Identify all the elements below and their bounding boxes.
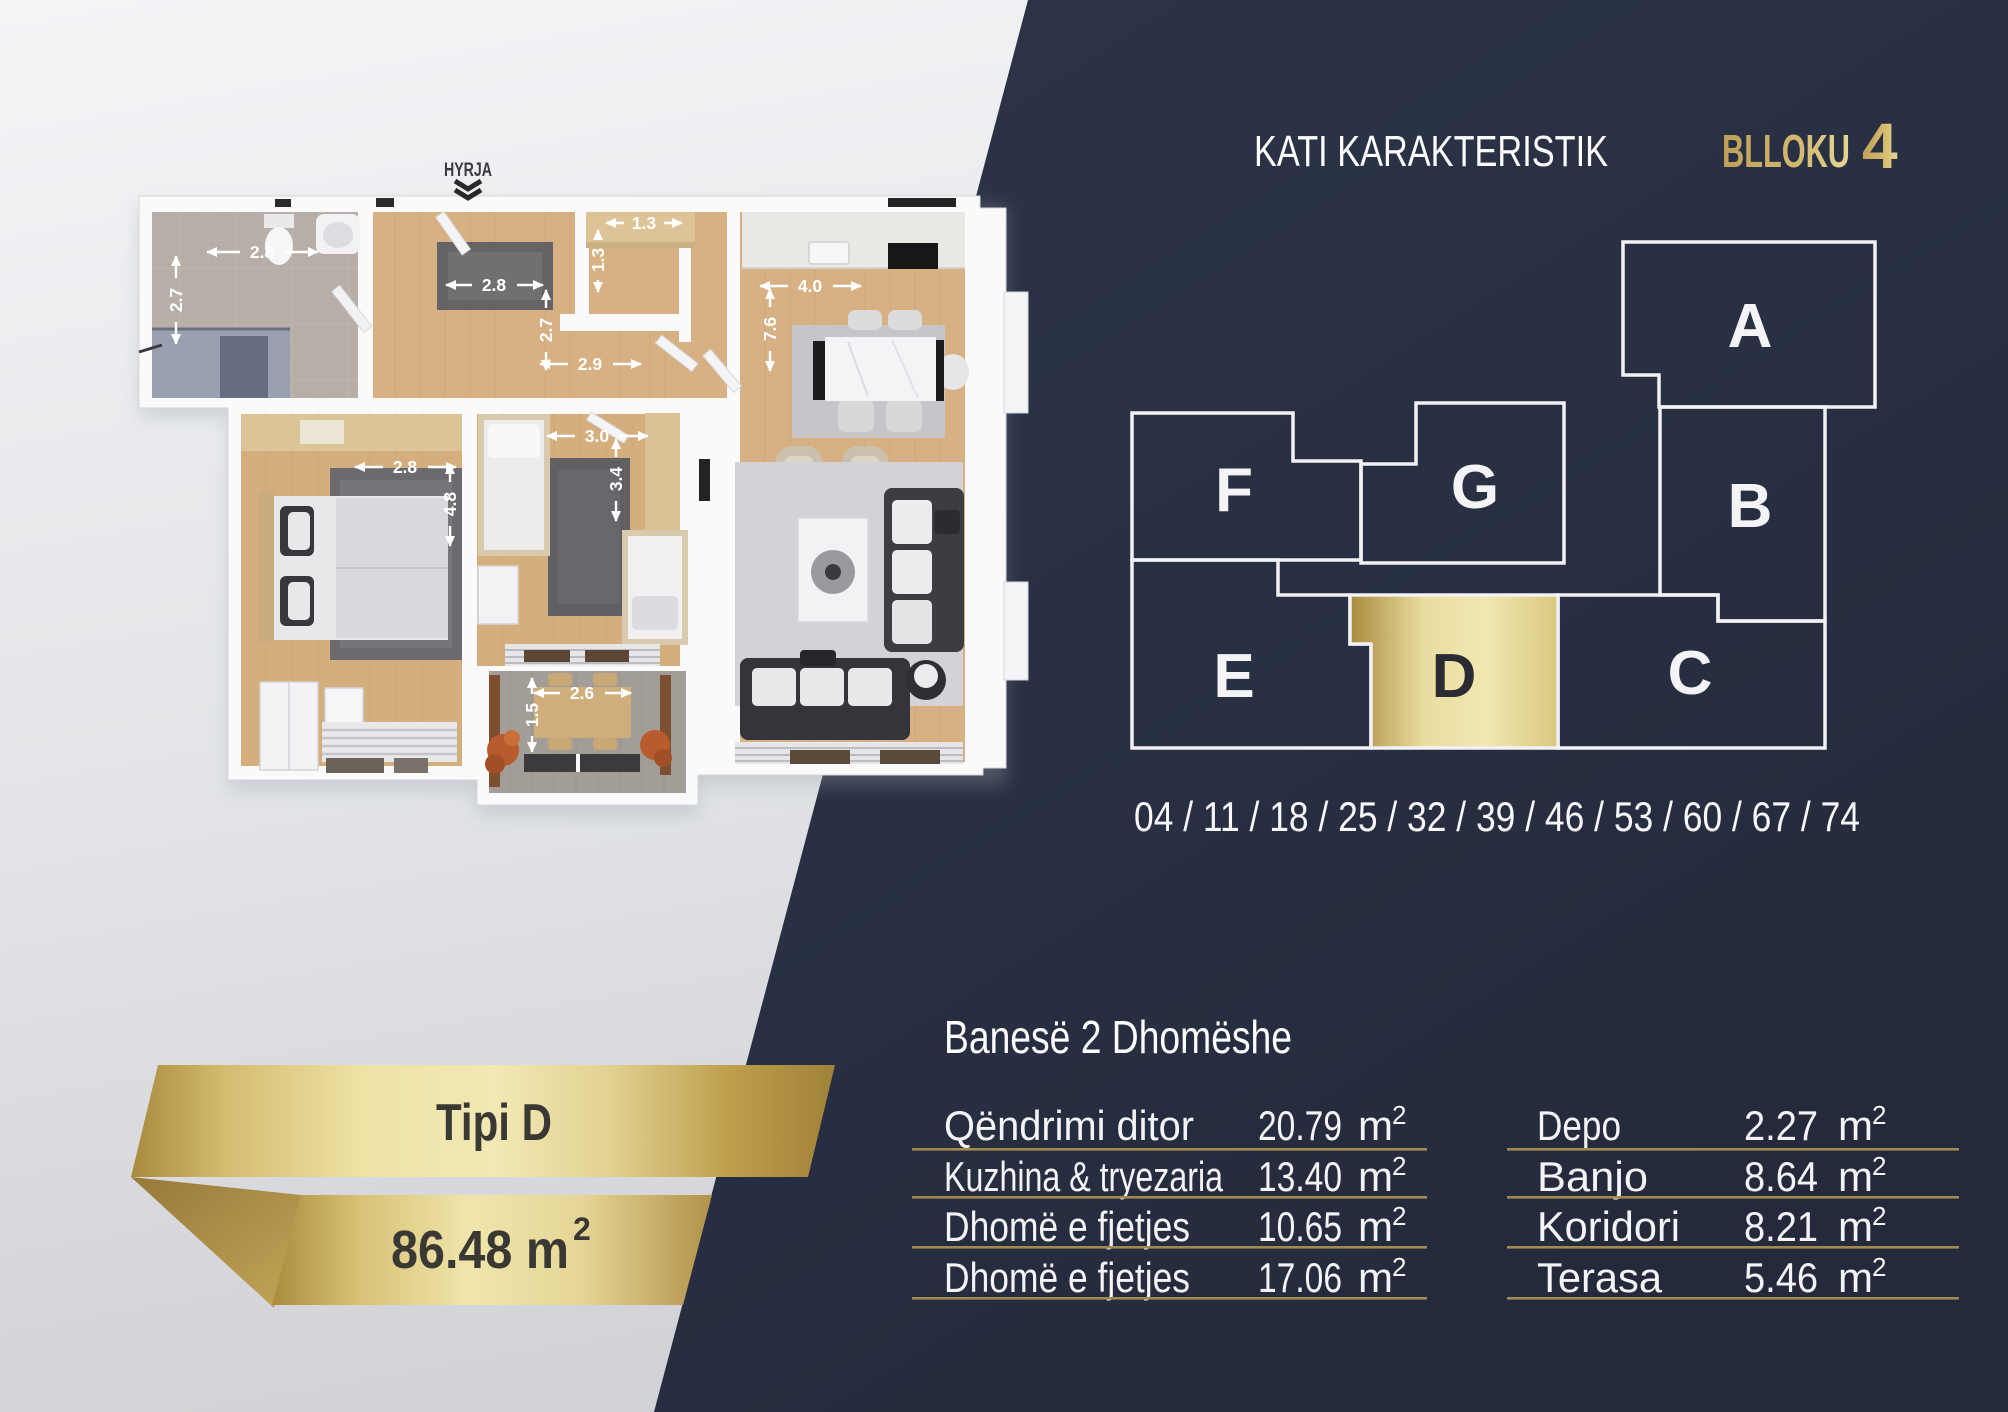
svg-text:m: m — [1358, 1254, 1393, 1301]
svg-text:Koridori: Koridori — [1537, 1203, 1680, 1250]
svg-text:A: A — [1728, 292, 1773, 361]
svg-text:m: m — [1838, 1203, 1873, 1250]
svg-text:m: m — [1358, 1102, 1393, 1149]
svg-text:m: m — [1838, 1102, 1873, 1149]
svg-text:8.21: 8.21 — [1744, 1203, 1818, 1250]
svg-text:2: 2 — [1872, 1100, 1886, 1130]
svg-text:BLLOKU: BLLOKU — [1722, 125, 1850, 177]
svg-text:2: 2 — [1392, 1100, 1406, 1130]
svg-text:2.8: 2.8 — [482, 275, 507, 295]
svg-text:4.8: 4.8 — [440, 492, 460, 517]
svg-text:8.64: 8.64 — [1744, 1153, 1818, 1200]
svg-text:13.40: 13.40 — [1258, 1153, 1342, 1200]
svg-text:HYRJA: HYRJA — [444, 160, 492, 181]
svg-text:2: 2 — [1392, 1201, 1406, 1231]
svg-text:2.6: 2.6 — [570, 683, 595, 703]
svg-text:Tipi D: Tipi D — [436, 1094, 552, 1152]
svg-text:Dhomë e fjetjes: Dhomë e fjetjes — [944, 1203, 1190, 1250]
svg-text:2.9: 2.9 — [578, 354, 603, 374]
svg-text:3.4: 3.4 — [606, 467, 626, 492]
svg-text:KATI KARAKTERISTIK: KATI KARAKTERISTIK — [1254, 127, 1608, 176]
svg-text:04 / 11 / 18 / 25 / 32 / 39 /: 04 / 11 / 18 / 25 / 32 / 39 / 46 / 53 / … — [1134, 793, 1860, 840]
svg-text:4: 4 — [1862, 110, 1898, 182]
svg-text:2: 2 — [1872, 1201, 1886, 1231]
svg-text:2.7: 2.7 — [166, 288, 186, 312]
svg-text:Dhomë e fjetjes: Dhomë e fjetjes — [944, 1254, 1190, 1301]
svg-text:7.6: 7.6 — [760, 317, 780, 342]
svg-text:17.06: 17.06 — [1258, 1254, 1342, 1301]
svg-text:m: m — [1838, 1153, 1873, 1200]
svg-text:m: m — [1838, 1254, 1873, 1301]
svg-text:1.5: 1.5 — [522, 703, 542, 728]
svg-text:m: m — [1358, 1153, 1393, 1200]
svg-text:20.79: 20.79 — [1258, 1102, 1342, 1149]
svg-text:Kuzhina & tryezaria: Kuzhina & tryezaria — [944, 1153, 1223, 1200]
svg-text:Banjo: Banjo — [1537, 1153, 1648, 1200]
svg-text:86.48 m: 86.48 m — [391, 1220, 569, 1280]
svg-text:1.3: 1.3 — [632, 213, 657, 233]
svg-text:G: G — [1451, 453, 1499, 522]
svg-text:4.0: 4.0 — [798, 276, 823, 296]
svg-text:Terasa: Terasa — [1537, 1254, 1663, 1301]
svg-text:F: F — [1215, 456, 1253, 525]
svg-text:2.7: 2.7 — [536, 318, 556, 342]
svg-text:2: 2 — [1872, 1252, 1886, 1282]
svg-text:Depo: Depo — [1537, 1102, 1621, 1149]
svg-text:2.27: 2.27 — [1744, 1102, 1818, 1149]
svg-text:Banesë 2 Dhomëshe: Banesë 2 Dhomëshe — [944, 1011, 1292, 1063]
svg-text:2: 2 — [573, 1211, 591, 1247]
svg-text:2.8: 2.8 — [393, 457, 418, 477]
svg-text:5.46: 5.46 — [1744, 1254, 1818, 1301]
svg-text:m: m — [1358, 1203, 1393, 1250]
svg-text:Qëndrimi ditor: Qëndrimi ditor — [944, 1102, 1194, 1149]
svg-text:C: C — [1668, 639, 1713, 708]
svg-text:3.0: 3.0 — [585, 426, 610, 446]
svg-text:2: 2 — [1872, 1151, 1886, 1181]
svg-text:2: 2 — [1392, 1151, 1406, 1181]
svg-text:D: D — [1432, 642, 1477, 711]
svg-text:2: 2 — [1392, 1252, 1406, 1282]
svg-text:2.8: 2.8 — [250, 242, 275, 262]
svg-text:1.3: 1.3 — [588, 248, 608, 273]
svg-text:10.65: 10.65 — [1258, 1203, 1342, 1250]
svg-text:B: B — [1728, 472, 1773, 541]
svg-text:E: E — [1213, 642, 1254, 711]
